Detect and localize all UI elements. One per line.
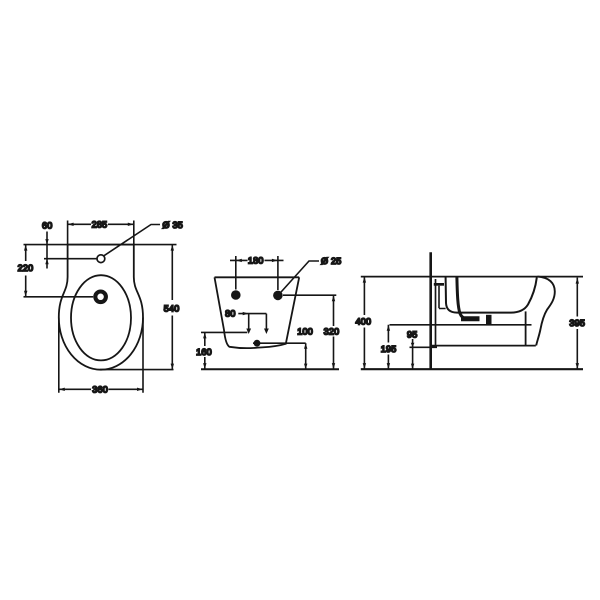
svg-text:220: 220 bbox=[18, 263, 34, 273]
svg-text:160: 160 bbox=[196, 347, 212, 357]
svg-text:320: 320 bbox=[324, 327, 340, 337]
svg-text:60: 60 bbox=[42, 220, 53, 230]
svg-text:Ø 35: Ø 35 bbox=[163, 220, 184, 230]
svg-text:180: 180 bbox=[248, 256, 264, 266]
svg-text:540: 540 bbox=[164, 304, 180, 314]
svg-text:395: 395 bbox=[569, 318, 585, 328]
svg-text:195: 195 bbox=[381, 344, 397, 354]
svg-text:285: 285 bbox=[92, 220, 108, 230]
svg-text:360: 360 bbox=[92, 385, 108, 395]
svg-text:Ø 25: Ø 25 bbox=[321, 256, 342, 266]
svg-text:80: 80 bbox=[225, 308, 236, 318]
svg-text:100: 100 bbox=[297, 327, 313, 337]
svg-text:95: 95 bbox=[407, 330, 418, 340]
svg-text:400: 400 bbox=[356, 316, 372, 326]
